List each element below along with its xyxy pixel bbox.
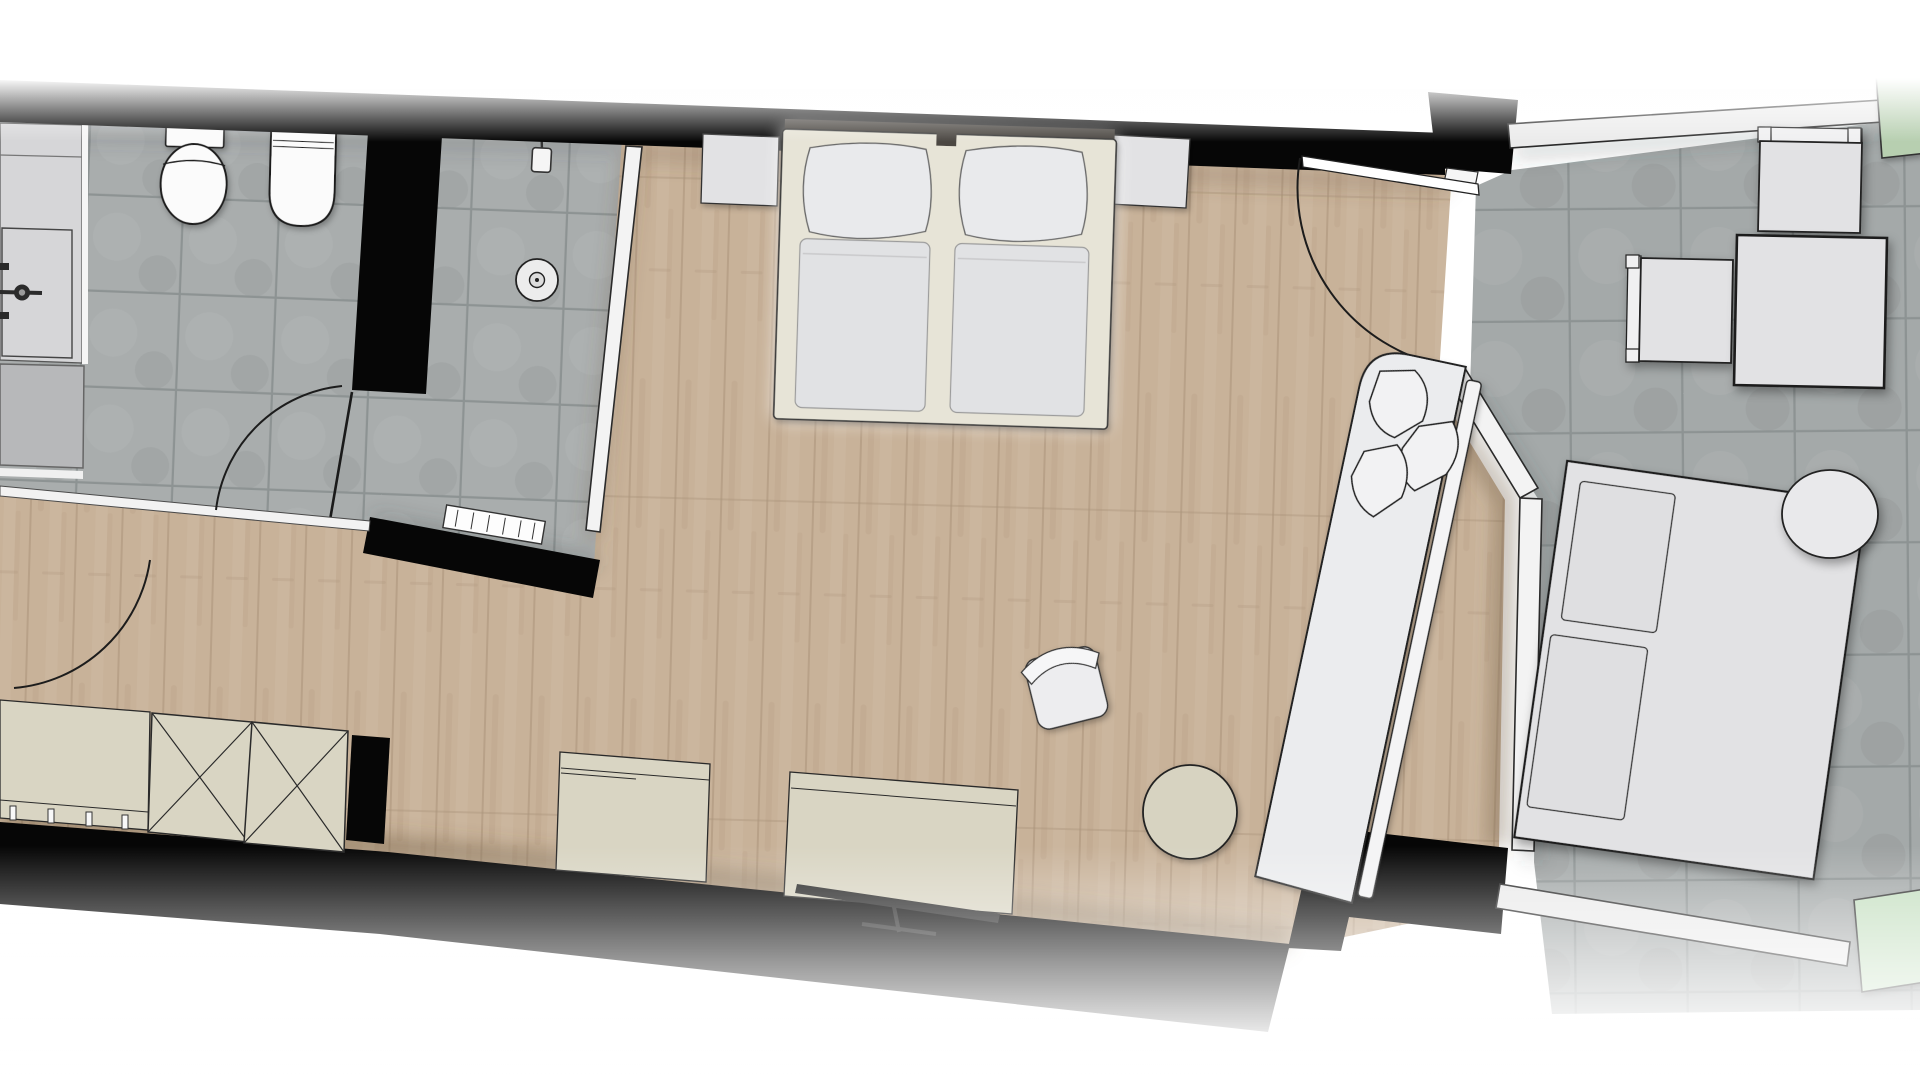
pillow-left [802, 141, 933, 241]
wardrobe-left [148, 713, 252, 842]
wardrobe-right [244, 722, 348, 852]
sun-lounger-cushion-1 [1561, 481, 1676, 633]
pillow-right [958, 144, 1089, 244]
floor-drain-symbol [516, 259, 558, 301]
outdoor-chair-side [1626, 255, 1733, 363]
mattress-right [950, 243, 1089, 416]
double-bed [774, 119, 1117, 429]
nightstand-right [1110, 135, 1190, 208]
appliance-block [0, 364, 84, 479]
pouf [1143, 765, 1237, 859]
fade-top [0, 0, 1920, 142]
outdoor-chair-upper [1758, 127, 1862, 233]
floor-plan-canvas [0, 0, 1920, 1080]
wall-stub-wardrobe [346, 735, 390, 844]
coat-rack [0, 700, 150, 830]
mattress-left [795, 238, 930, 411]
fade-bottom [0, 845, 1920, 1080]
outdoor-table [1734, 235, 1887, 388]
round-side-table [1782, 470, 1878, 558]
vanity-counter [0, 123, 88, 364]
nightstand-left [701, 134, 779, 206]
